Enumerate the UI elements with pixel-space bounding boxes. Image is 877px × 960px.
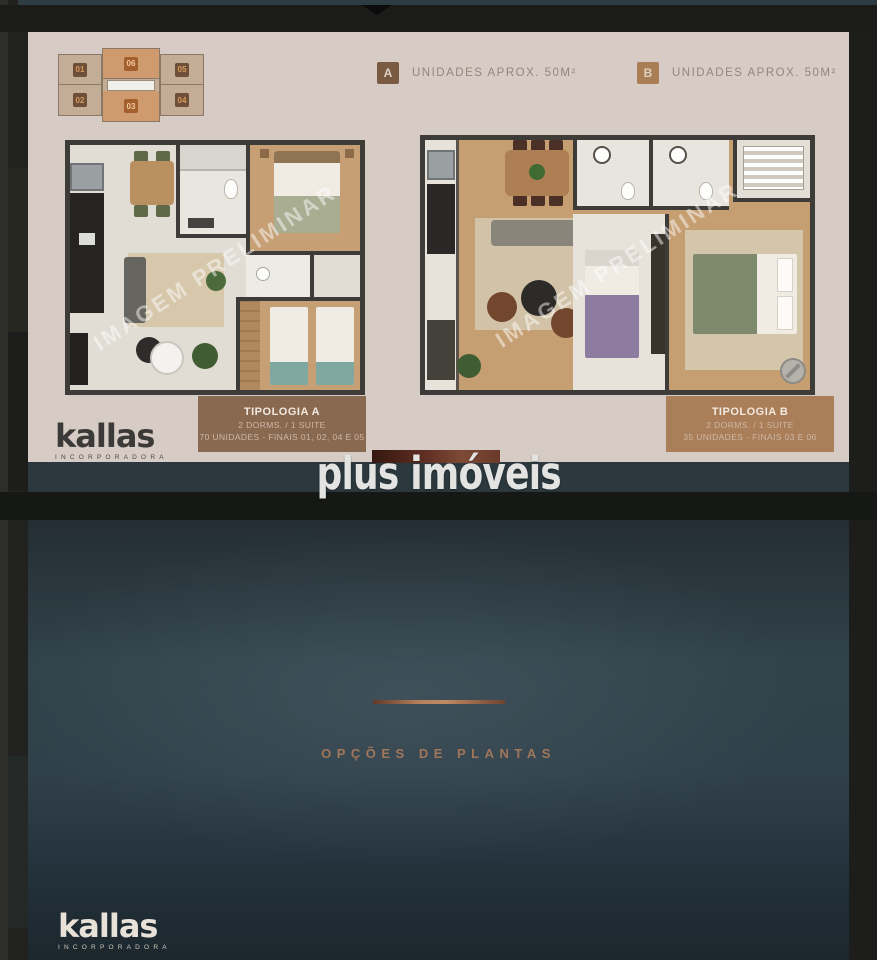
toilet [699, 182, 713, 200]
coffee-table [521, 280, 557, 316]
kitchen-counter [427, 184, 455, 254]
unit-badge: 02 [73, 93, 87, 107]
second-bedroom [236, 297, 360, 390]
round-table [150, 341, 184, 375]
legend-a-label: UNIDADES APROX. 50M² [412, 67, 577, 79]
plus-imoveis-watermark: plus imóveis [0, 447, 877, 500]
top-black-band [0, 5, 877, 32]
wall [649, 140, 653, 206]
nightstand [260, 149, 269, 158]
blanket [585, 295, 639, 358]
keyplan-core [107, 80, 155, 91]
dining-table [130, 161, 174, 205]
plant [206, 271, 226, 291]
background-thumbnail [8, 756, 28, 928]
pillow [777, 296, 793, 330]
keyplan-unit-highlight: 03 [103, 91, 159, 121]
typology-b-title: TIPOLOGIA B [712, 406, 789, 418]
copper-divider-line [372, 700, 505, 704]
plant [192, 343, 218, 369]
toilet [224, 179, 238, 199]
kallas-logo: kallas INCORPORADORA [58, 910, 171, 952]
second-bedroom [573, 214, 669, 390]
typology-a-dorms: 2 DORMS. / 1 SUITE [238, 420, 326, 430]
unit-badge: 01 [73, 63, 87, 77]
typology-b-card: TIPOLOGIA B 2 DORMS. / 1 SUITE 35 UNIDAD… [666, 396, 834, 452]
slide-title: OPÇÕES DE PLANTAS [28, 746, 849, 761]
keyplan-unit-highlight: 06 [103, 49, 159, 79]
kitchen-sink [79, 233, 95, 245]
kallas-wordmark: kallas [58, 910, 171, 942]
sink [669, 146, 687, 164]
hall-lavatory [246, 255, 314, 297]
kitchen-counter [427, 320, 455, 380]
screenshot-stage: 01 02 06 03 05 04 [0, 0, 877, 960]
pillow [777, 258, 793, 292]
double-bed [693, 254, 797, 334]
legend-a: A UNIDADES APROX. 50M² [377, 62, 577, 84]
unit-badge: 06 [124, 57, 138, 71]
blanket [274, 196, 340, 233]
keyplan-left-wing: 01 02 [58, 54, 102, 116]
keyplan-center-block: 06 03 [102, 48, 160, 122]
background-thumbnail [8, 168, 28, 332]
keyplan-right-wing: 05 04 [160, 54, 204, 116]
typology-a-card: TIPOLOGIA A 2 DORMS. / 1 SUITE 70 UNIDAD… [198, 396, 366, 452]
legend-a-badge: A [377, 62, 399, 84]
sink [256, 267, 270, 281]
single-bed [316, 307, 354, 385]
sink [593, 146, 611, 164]
armchair [487, 292, 517, 322]
keyplan-unit: 01 [59, 55, 101, 85]
bathroom [176, 145, 246, 238]
desk [70, 333, 88, 385]
legend-b: B UNIDADES APROX. 50M² [637, 62, 837, 84]
floorplan-slide: 01 02 06 03 05 04 [28, 32, 849, 462]
blanket [316, 362, 354, 385]
suite-bedroom [677, 210, 810, 390]
typology-a-title: TIPOLOGIA A [244, 406, 320, 418]
kitchen [425, 140, 459, 390]
wardrobe [240, 301, 260, 390]
unit-badge: 04 [175, 93, 189, 107]
legend-b-label: UNIDADES APROX. 50M² [672, 67, 837, 79]
legend-b-badge: B [637, 62, 659, 84]
plant [529, 164, 545, 180]
dining-chair [134, 205, 148, 217]
shelves [743, 146, 804, 190]
sink-counter [188, 218, 214, 228]
unit-badge: 05 [175, 63, 189, 77]
kallas-subtitle: INCORPORADORA [58, 945, 171, 952]
suite-bedroom [246, 145, 360, 255]
bathrooms [573, 140, 729, 210]
single-bed [270, 307, 308, 385]
blanket [270, 362, 308, 385]
plant [457, 354, 481, 378]
unit-badge: 03 [124, 99, 138, 113]
nightstand [345, 149, 354, 158]
closet [733, 140, 810, 202]
floorplan-b: IMAGEM PRELIMINAR [420, 135, 815, 395]
notch-icon [362, 5, 392, 15]
keyplan-unit: 05 [161, 55, 203, 85]
fridge [70, 163, 104, 191]
keyplan-unit: 02 [59, 85, 101, 115]
sofa [124, 257, 146, 323]
floorplan-a: IMAGEM PRELIMINAR [65, 140, 365, 395]
wardrobe [651, 234, 665, 354]
opcoes-de-plantas-slide: OPÇÕES DE PLANTAS kallas INCORPORADORA [28, 520, 849, 960]
keyplan-unit: 04 [161, 85, 203, 115]
pillow [585, 250, 639, 266]
typology-b-units: 35 UNIDADES - FINAIS 03 E 06 [683, 432, 817, 442]
single-bed [585, 250, 639, 358]
dining-chair [156, 205, 170, 217]
typology-b-dorms: 2 DORMS. / 1 SUITE [706, 420, 794, 430]
fan-icon [780, 358, 806, 384]
typology-a-units: 70 UNIDADES - FINAIS 01, 02, 04 E 05 [199, 432, 364, 442]
headboard [274, 151, 340, 163]
toilet [621, 182, 635, 200]
keyplan: 01 02 06 03 05 04 [58, 48, 204, 124]
blanket [693, 254, 757, 334]
double-bed [274, 151, 340, 233]
fridge [427, 150, 455, 180]
kitchen-counter [70, 193, 104, 313]
shower [180, 145, 246, 171]
plus-imoveis-text: plus imóveis [316, 447, 560, 500]
